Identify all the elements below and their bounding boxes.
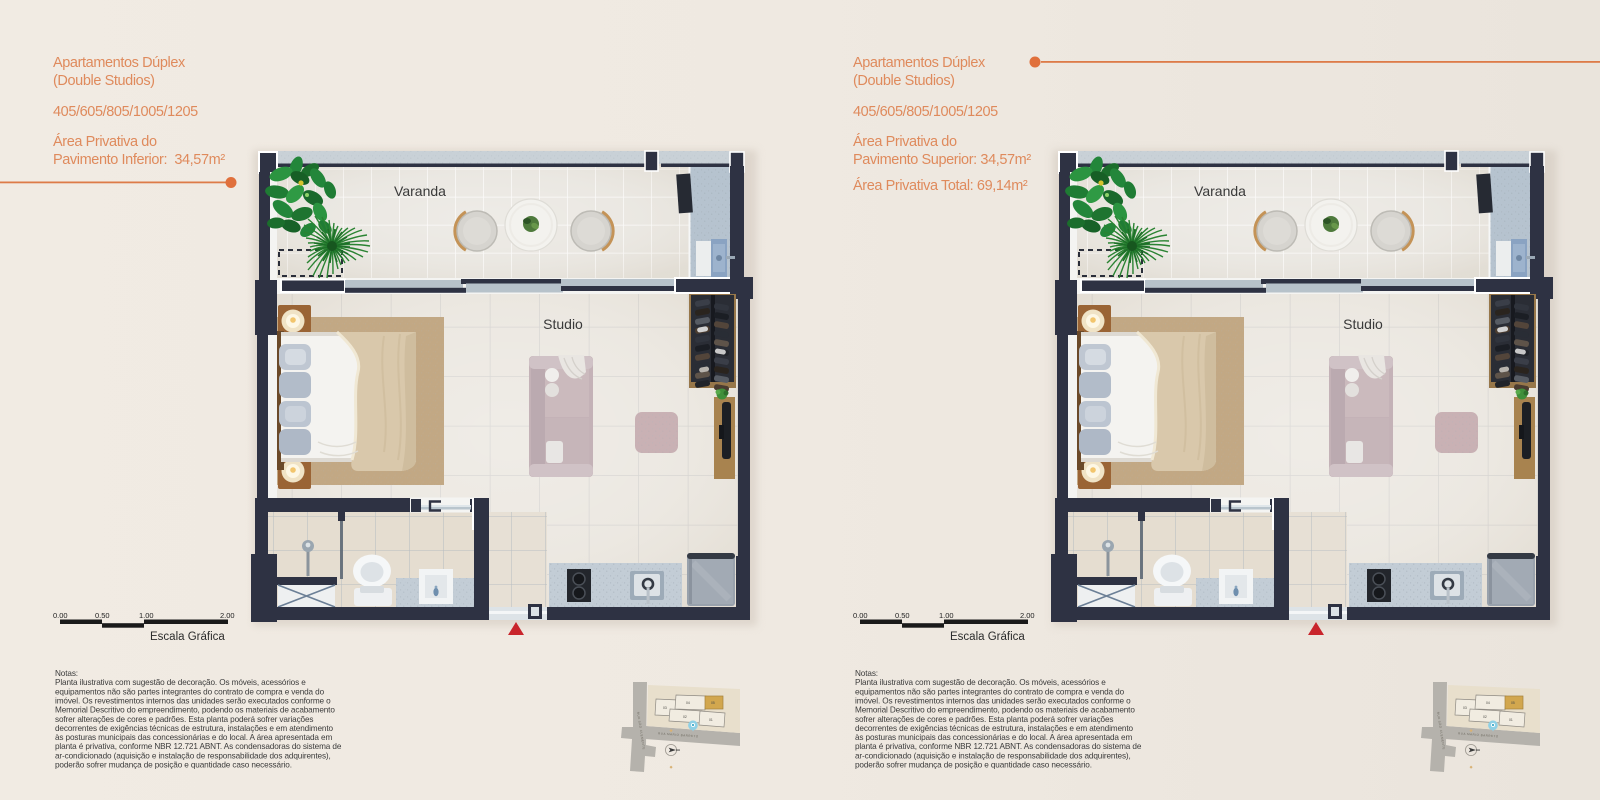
svg-text:Notas:: Notas: [55,669,78,678]
svg-text:1.00: 1.00 [939,611,954,620]
svg-text:Área Privativa do: Área Privativa do [853,133,957,150]
svg-text:Pavimento Superior: 34,57m²: Pavimento Superior: 34,57m² [853,152,1031,168]
svg-text:1.00: 1.00 [139,611,154,620]
svg-text:0.50: 0.50 [895,611,910,620]
svg-text:decorrentes de exigências técn: decorrentes de exigências técnicas de es… [855,724,1134,733]
svg-text:planta é privativa, conforme N: planta é privativa, conforme NBR 12.721 … [55,742,342,751]
svg-text:Varanda: Varanda [1194,183,1246,199]
svg-text:05: 05 [711,701,715,705]
svg-text:às posturas municipais das con: às posturas municipais das concessionári… [855,733,1132,742]
svg-text:05: 05 [1511,701,1515,705]
svg-text:Pavimento Inferior: 34,57m²: Pavimento Inferior: 34,57m² [53,152,225,168]
svg-text:planta é privativa, conforme N: planta é privativa, conforme NBR 12.721 … [855,742,1142,751]
svg-text:01: 01 [1509,718,1513,722]
svg-text:02: 02 [1483,715,1487,719]
svg-text:Apartamentos Dúplex: Apartamentos Dúplex [853,55,986,71]
svg-text:405/605/805/1005/1205: 405/605/805/1005/1205 [853,104,998,120]
svg-text:02: 02 [683,715,687,719]
svg-text:04: 04 [686,701,690,705]
svg-text:poderão sofrer mudança de posi: poderão sofrer mudança de posição e quan… [855,761,1092,770]
svg-text:Studio: Studio [543,316,583,332]
svg-text:0.00: 0.00 [853,611,868,620]
svg-text:Apartamentos Dúplex: Apartamentos Dúplex [53,55,186,71]
svg-text:Varanda: Varanda [394,183,446,199]
svg-text:2.00: 2.00 [220,611,235,620]
svg-text:Memorial Descritivo do empreen: Memorial Descritivo do empreendimento, p… [55,706,335,715]
svg-text:sofrer alterações de cores e p: sofrer alterações de cores e padrões. Es… [55,715,313,724]
svg-text:Memorial Descritivo do empreen: Memorial Descritivo do empreendimento, p… [855,706,1135,715]
svg-text:01: 01 [709,718,713,722]
svg-text:Studio: Studio [1343,316,1383,332]
svg-text:Área Privativa Total: 69,14m²: Área Privativa Total: 69,14m² [853,177,1028,194]
svg-text:Planta ilustrativa com sugestã: Planta ilustrativa com sugestão de decor… [55,678,306,687]
svg-text:405/605/805/1005/1205: 405/605/805/1005/1205 [53,104,198,120]
svg-text:Escala Gráfica: Escala Gráfica [150,631,225,643]
svg-text:imóvel. Os revestimentos inter: imóvel. Os revestimentos internos das un… [55,696,331,705]
svg-text:sofrer alterações de cores e p: sofrer alterações de cores e padrões. Es… [855,715,1113,724]
svg-text:às posturas municipais das con: às posturas municipais das concessionári… [55,733,332,742]
svg-text:04: 04 [1486,701,1490,705]
svg-text:Planta ilustrativa com sugestã: Planta ilustrativa com sugestão de decor… [855,678,1106,687]
svg-text:decorrentes de exigências técn: decorrentes de exigências técnicas de es… [55,724,334,733]
svg-text:03: 03 [1463,706,1467,710]
svg-text:(Double Studios): (Double Studios) [853,73,955,89]
svg-text:2.00: 2.00 [1020,611,1035,620]
svg-text:0.50: 0.50 [95,611,110,620]
svg-text:equipamentos não são partes in: equipamentos não são partes integrantes … [855,687,1125,696]
svg-text:0.00: 0.00 [53,611,68,620]
svg-text:equipamentos não são partes in: equipamentos não são partes integrantes … [55,687,325,696]
svg-text:imóvel. Os revestimentos inter: imóvel. Os revestimentos internos das un… [855,696,1131,705]
svg-text:03: 03 [663,706,667,710]
svg-text:(Double Studios): (Double Studios) [53,73,155,89]
svg-text:Escala Gráfica: Escala Gráfica [950,631,1025,643]
svg-text:ar-condicionado (aquisição e i: ar-condicionado (aquisição e instalação … [855,751,1131,760]
svg-text:Área Privativa do: Área Privativa do [53,133,157,150]
svg-text:ar-condicionado (aquisição e i: ar-condicionado (aquisição e instalação … [55,751,331,760]
svg-text:Notas:: Notas: [855,669,878,678]
svg-text:poderão sofrer mudança de posi: poderão sofrer mudança de posição e quan… [55,761,292,770]
